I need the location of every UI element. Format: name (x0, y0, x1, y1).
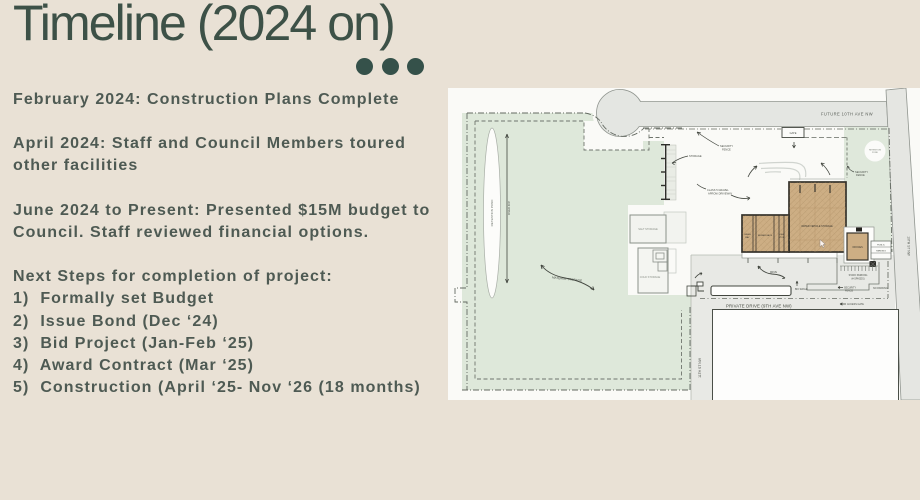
svg-text:FUTURE 10TH AVE NW: FUTURE 10TH AVE NW (821, 111, 873, 116)
svg-text:WATER VEHICLE STORAGE: WATER VEHICLE STORAGE (801, 225, 833, 228)
svg-text:SALT STORAGE: SALT STORAGE (638, 227, 658, 231)
svg-text:SECURITY: SECURITY (720, 144, 733, 148)
svg-text:FENCE: FENCE (845, 290, 854, 293)
svg-text:10TH ST NW: 10TH ST NW (907, 236, 911, 256)
svg-text:POND: POND (872, 152, 879, 154)
svg-text:VEH: VEH (779, 234, 784, 236)
svg-text:CLASS 5 GRAVEL: CLASS 5 GRAVEL (707, 188, 729, 192)
svg-text:PRIVATE DRIVE (9TH AVE NW): PRIVATE DRIVE (9TH AVE NW) (726, 303, 792, 308)
svg-text:COLD STORAGE: COLD STORAGE (640, 275, 661, 279)
svg-text:PARKING: PARKING (876, 250, 886, 253)
svg-text:PUBLIC: PUBLIC (877, 245, 885, 247)
svg-text:BAY: BAY (745, 236, 750, 239)
svg-text:NO PARKING: NO PARKING (873, 287, 888, 290)
svg-text:BIO SWALE: BIO SWALE (795, 288, 808, 291)
svg-text:DRIVE: DRIVE (770, 272, 777, 274)
svg-text:APRON/ DRIVEWAY: APRON/ DRIVEWAY (708, 192, 732, 196)
svg-text:11TH ST NW: 11TH ST NW (698, 357, 702, 378)
svg-text:RETENTION POND: RETENTION POND (490, 199, 494, 227)
svg-text:FENCE: FENCE (722, 148, 731, 152)
svg-text:RETENTION: RETENTION (869, 149, 882, 151)
svg-text:REPAIR BAYS: REPAIR BAYS (758, 234, 773, 237)
svg-text:STORAGE: STORAGE (689, 154, 702, 158)
svg-text:FENCE: FENCE (856, 173, 865, 177)
svg-text:(# SPACES): (# SPACES) (851, 278, 864, 281)
svg-text:STOR: STOR (778, 237, 784, 239)
svg-text:ACCESS GATE: ACCESS GATE (847, 303, 864, 306)
svg-text:WASH: WASH (744, 233, 751, 236)
svg-text:OFFICES: OFFICES (852, 246, 863, 249)
svg-text:GATE: GATE (790, 131, 797, 135)
svg-text:OVER 400': OVER 400' (507, 201, 511, 215)
